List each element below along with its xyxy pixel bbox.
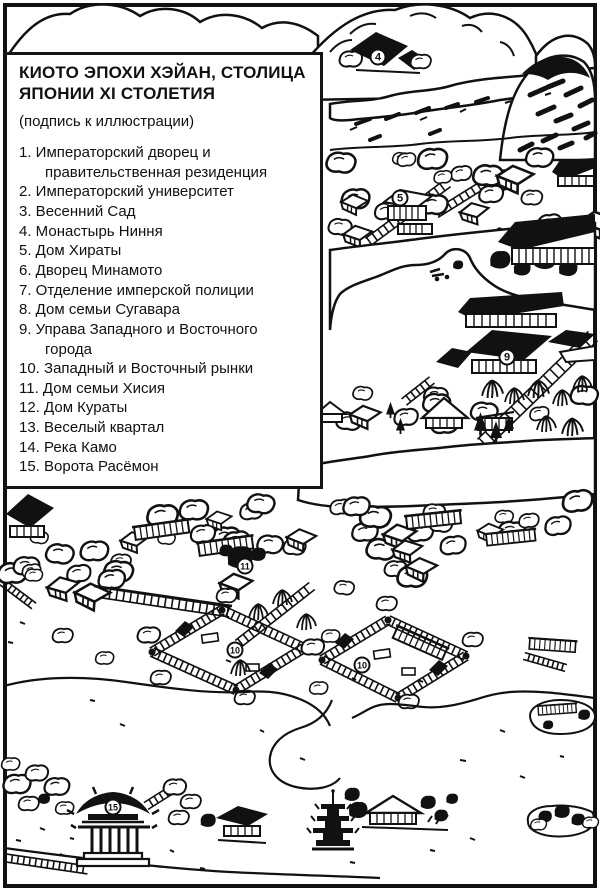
legend-item-8: 8. Дом семьи Сугавара xyxy=(19,300,308,320)
legend-item-number: 12. xyxy=(19,399,40,416)
map-marker-9: 9 xyxy=(499,349,516,366)
legend-item-number: 5. xyxy=(19,242,32,259)
grove-islet xyxy=(530,700,595,734)
legend-item-label: Отделение имперской полиции xyxy=(32,282,254,299)
legend-item-6: 6. Дворец Минамото xyxy=(19,261,308,281)
legend-item-number: 15. xyxy=(19,458,40,475)
legend-item-number: 10. xyxy=(19,360,40,377)
legend-item-label: Дом семьи Сугавара xyxy=(32,301,180,318)
legend-item-number: 6. xyxy=(19,262,32,279)
legend-item-label: Река Камо xyxy=(40,439,117,456)
map-marker-10-east: 10 xyxy=(354,657,371,674)
legend-item-label: Западный и Восточный рынки xyxy=(40,360,253,377)
legend-item-2: 2. Императорский университет xyxy=(19,182,308,202)
illustration-page: КИОТО ЭПОХИ ХЭЙАН, СТОЛИЦА ЯПОНИИ XI СТО… xyxy=(0,0,600,893)
legend-title-line1: КИОТО ЭПОХИ ХЭЙАН, СТОЛИЦА xyxy=(19,62,308,83)
legend-item-3: 3. Весенний Сад xyxy=(19,202,308,222)
legend-item-14: 14. Река Камо xyxy=(19,438,308,458)
legend-box: КИОТО ЭПОХИ ХЭЙАН, СТОЛИЦА ЯПОНИИ XI СТО… xyxy=(4,52,323,489)
map-marker-4: 4 xyxy=(370,49,387,66)
legend-item-number: 7. xyxy=(19,282,32,299)
legend-title-line2: ЯПОНИИ XI СТОЛЕТИЯ xyxy=(19,83,308,104)
legend-item-number: 11. xyxy=(19,380,39,397)
legend-item-label: Монастырь Ниння xyxy=(32,223,163,240)
legend-item-number: 9. xyxy=(19,321,32,338)
legend-item-label: Дом Хираты xyxy=(32,242,122,259)
legend-item-12: 12. Дом Кураты xyxy=(19,398,308,418)
legend-caption: (подпись к иллюстрации) xyxy=(19,113,308,130)
legend-list: 1. Императорский дворец и правительствен… xyxy=(19,143,308,477)
legend-item-number: 1. xyxy=(19,144,32,161)
legend-item-13: 13. Веселый квартал xyxy=(19,418,308,438)
legend-item-label: Управа Западного и Восточного города xyxy=(32,321,258,358)
map-marker-15: 15 xyxy=(105,799,122,816)
legend-title: КИОТО ЭПОХИ ХЭЙАН, СТОЛИЦА ЯПОНИИ XI СТО… xyxy=(19,62,308,104)
legend-item-number: 2. xyxy=(19,183,32,200)
legend-item-number: 13. xyxy=(19,419,40,436)
legend-item-label: Весенний Сад xyxy=(32,203,136,220)
legend-item-15: 15. Ворота Расёмон xyxy=(19,457,308,477)
legend-item-label: Дворец Минамото xyxy=(32,262,163,279)
legend-item-7: 7. Отделение имперской полиции xyxy=(19,281,308,301)
legend-item-number: 3. xyxy=(19,203,32,220)
legend-item-number: 14. xyxy=(19,439,40,456)
legend-item-number: 4. xyxy=(19,223,32,240)
legend-item-label: Императорский дворец и правительственная… xyxy=(32,144,268,181)
legend-item-label: Императорский университет xyxy=(32,183,234,200)
legend-item-4: 4. Монастырь Ниння xyxy=(19,222,308,242)
map-marker-5: 5 xyxy=(392,190,409,207)
legend-item-9: 9. Управа Западного и Восточного города xyxy=(19,320,308,359)
map-marker-10-west: 10 xyxy=(227,642,244,659)
legend-item-10: 10. Западный и Восточный рынки xyxy=(19,359,308,379)
legend-item-label: Дом Кураты xyxy=(40,399,127,416)
legend-item-label: Веселый квартал xyxy=(40,419,164,436)
legend-item-1: 1. Императорский дворец и правительствен… xyxy=(19,143,308,182)
legend-item-11: 11. Дом семьи Хисия xyxy=(19,379,308,399)
legend-item-label: Ворота Расёмон xyxy=(40,458,159,475)
legend-item-number: 8. xyxy=(19,301,32,318)
map-marker-11: 11 xyxy=(237,558,254,575)
legend-item-label: Дом семьи Хисия xyxy=(39,380,165,397)
legend-item-5: 5. Дом Хираты xyxy=(19,241,308,261)
